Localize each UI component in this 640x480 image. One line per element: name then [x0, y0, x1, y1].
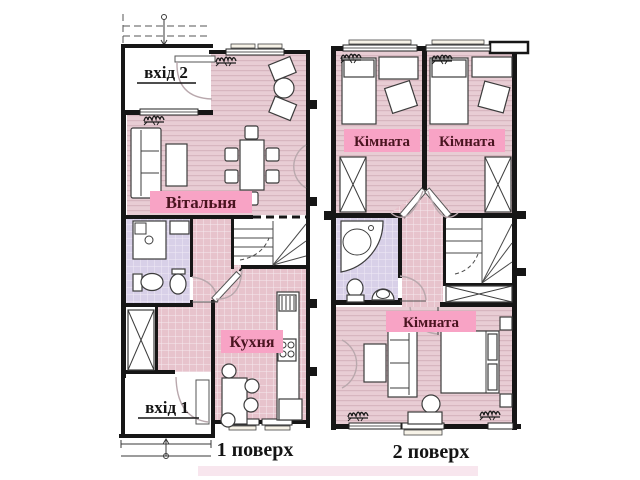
dining-table [240, 140, 264, 190]
entrance2-door-leaf [175, 56, 215, 62]
sofa [388, 331, 417, 397]
stool [244, 398, 258, 412]
living-room-label: Вітальня [166, 193, 237, 212]
shower [133, 221, 166, 259]
desk [472, 57, 512, 77]
toilet-tank [347, 295, 364, 302]
stool [245, 379, 259, 393]
stool [222, 364, 236, 378]
entrance2-label: вхід 2 [144, 63, 188, 82]
desk [379, 57, 418, 79]
round-table [274, 78, 294, 98]
coffee-table [166, 144, 187, 186]
stool [221, 413, 235, 427]
kitchen-label: Кухня [229, 334, 274, 351]
chair [245, 126, 258, 139]
cabinet [170, 221, 189, 234]
floorplan-svg: вхід 2 Вітальня Кухня вхід 1 1 поверх [0, 0, 640, 480]
wardrobe-under-stairs [446, 286, 512, 302]
pillow [488, 364, 497, 390]
sink-tap [172, 269, 185, 274]
sofa [131, 128, 161, 198]
floor1-plan: вхід 2 Вітальня Кухня вхід 1 1 поверх [119, 14, 317, 461]
pillow [344, 60, 374, 77]
round-table [422, 395, 440, 413]
chair [225, 170, 238, 183]
fridge [279, 399, 302, 420]
bedroom2-label: Кімната [439, 134, 496, 150]
toilet [347, 279, 363, 297]
floor1-dimensions [121, 439, 211, 459]
sink [170, 274, 186, 294]
floor2-plan: Кімната Кімната Кімната 2 поверх [324, 40, 528, 463]
toilet [141, 274, 163, 291]
bedroom1-label: Кімната [354, 134, 411, 150]
floor2-caption: 2 поверх [393, 441, 470, 463]
tv-stand [408, 412, 442, 424]
floor1-caption: 1 поверх [217, 439, 294, 461]
nightstand [500, 394, 512, 407]
stairs2-floor [446, 218, 512, 283]
bedroom3-label: Кімната [403, 315, 460, 331]
balcony-flange [490, 42, 528, 53]
wardrobe1 [128, 310, 154, 370]
chair [266, 170, 279, 183]
chair [266, 148, 279, 161]
floorplan-image: вхід 2 Вітальня Кухня вхід 1 1 поверх [0, 0, 640, 480]
entrance1-label: вхід 1 [145, 398, 189, 417]
pillow [432, 60, 466, 77]
stairs1-floor [234, 221, 306, 265]
nightstand [500, 317, 512, 330]
coffee-table [364, 344, 386, 382]
porch-canopy [123, 14, 210, 48]
chair [225, 148, 238, 161]
watermark-strip [198, 466, 478, 476]
pillow [488, 334, 497, 360]
